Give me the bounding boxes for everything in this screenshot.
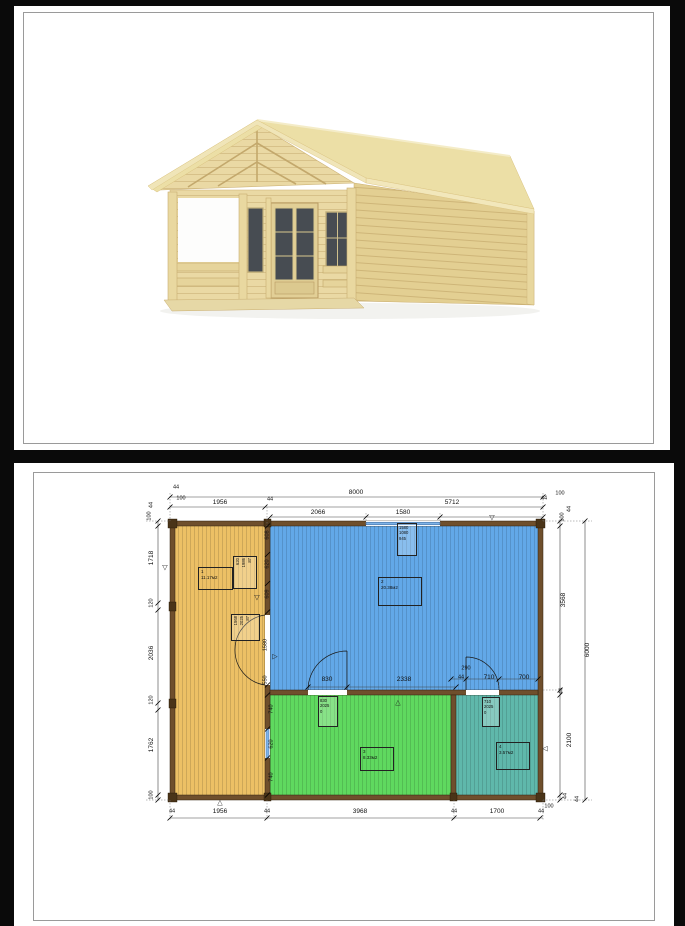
- floorplan-drawing: 8000441001956445712206615804410010044356…: [14, 463, 674, 926]
- floorplan-geometry: [14, 463, 674, 926]
- porch-window: [248, 208, 263, 272]
- pdf-viewer[interactable]: 8000441001956445712206615804410010044356…: [0, 0, 685, 926]
- page-1[interactable]: [14, 6, 670, 450]
- front-window: [326, 212, 349, 267]
- side-wall-corner-trim: [527, 210, 534, 305]
- double-door: [271, 203, 318, 298]
- porch-opening: [178, 198, 240, 262]
- page-2[interactable]: 8000441001956445712206615804410010044356…: [14, 463, 674, 926]
- cabin-3d-render: [130, 112, 560, 326]
